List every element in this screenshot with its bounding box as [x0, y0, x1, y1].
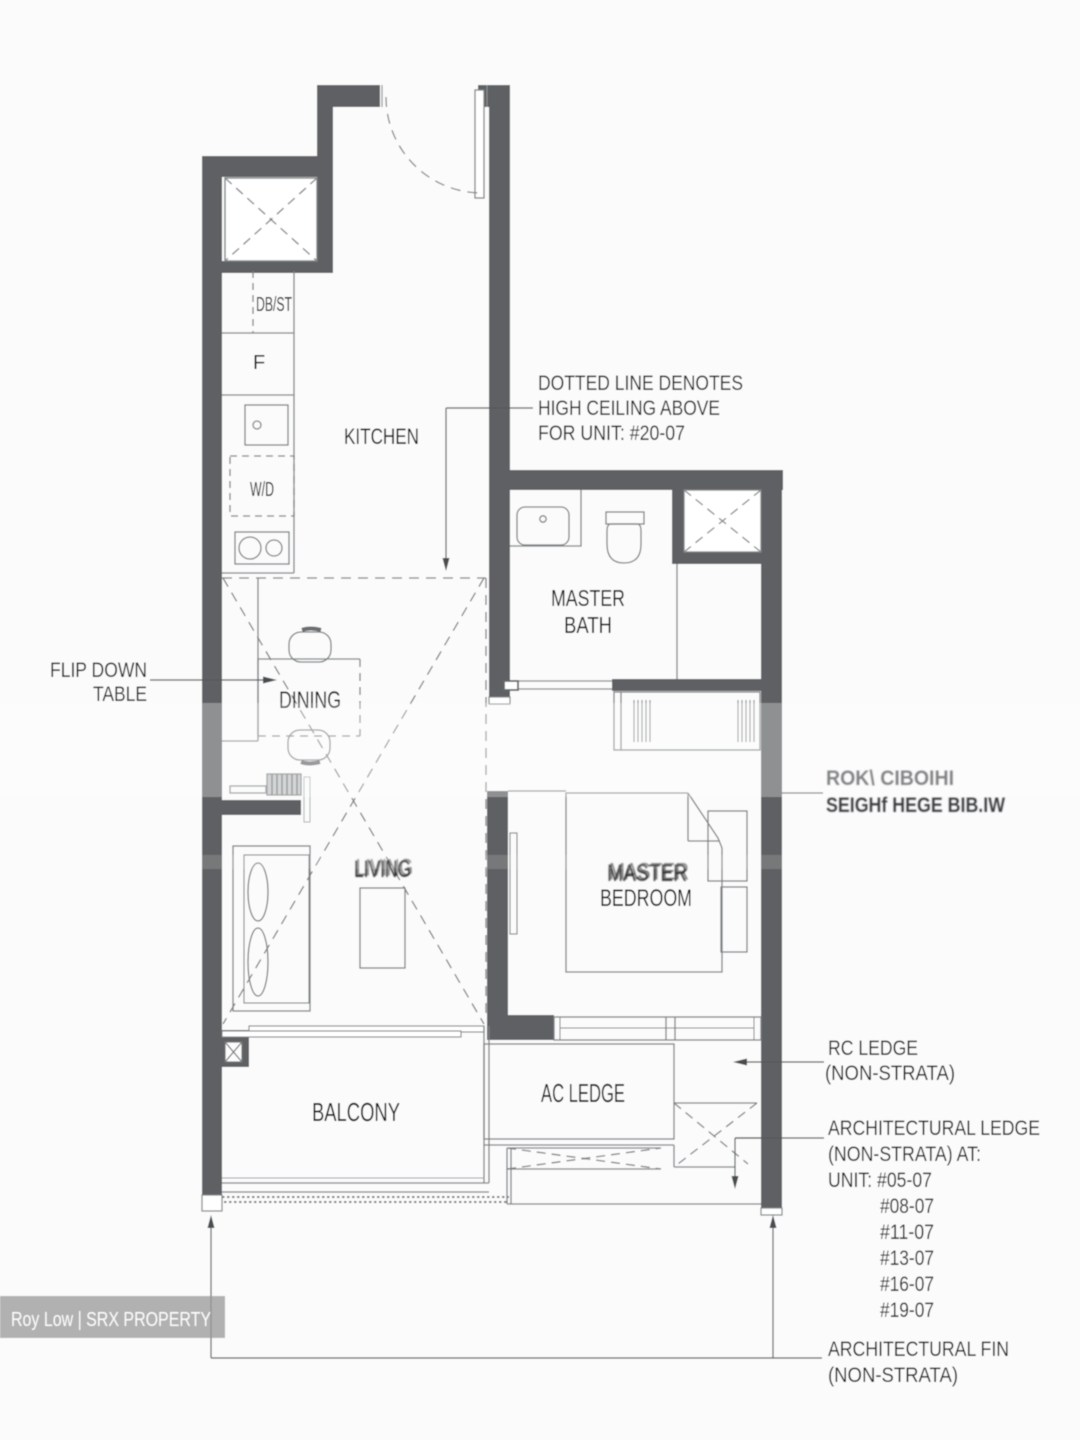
svg-text:AC LEDGE: AC LEDGE — [541, 1078, 625, 1108]
svg-text:#11-07: #11-07 — [880, 1221, 934, 1244]
svg-text:#19-07: #19-07 — [880, 1299, 934, 1322]
svg-text:ARCHITECTURAL FIN: ARCHITECTURAL FIN — [828, 1338, 1009, 1361]
svg-text:W/D: W/D — [250, 479, 274, 501]
svg-text:KITCHEN: KITCHEN — [344, 424, 419, 449]
svg-text:UNIT: #05-07: UNIT: #05-07 — [828, 1169, 932, 1192]
svg-text:TABLE: TABLE — [93, 683, 147, 706]
svg-text:BATH: BATH — [564, 612, 612, 638]
svg-text:(NON-STRATA): (NON-STRATA) — [825, 1062, 955, 1085]
svg-text:(NON-STRATA) AT:: (NON-STRATA) AT: — [828, 1143, 981, 1166]
svg-text:ARCHITECTURAL LEDGE: ARCHITECTURAL LEDGE — [828, 1117, 1040, 1140]
svg-text:DB/ST: DB/ST — [256, 294, 292, 316]
svg-text:RC LEDGE: RC LEDGE — [828, 1037, 918, 1060]
svg-text:#16-07: #16-07 — [880, 1273, 934, 1296]
svg-text:DOTTED LINE DENOTES: DOTTED LINE DENOTES — [538, 372, 743, 395]
svg-text:HIGH CEILING ABOVE: HIGH CEILING ABOVE — [538, 397, 720, 420]
svg-text:FOR UNIT: #20-07: FOR UNIT: #20-07 — [538, 422, 685, 445]
svg-text:BEDROOM: BEDROOM — [600, 885, 692, 912]
svg-text:MASTER: MASTER — [551, 585, 625, 611]
svg-text:#08-07: #08-07 — [880, 1195, 934, 1218]
svg-text:#13-07: #13-07 — [880, 1247, 934, 1270]
svg-text:SEIGHf HEGE BIB.IW: SEIGHf HEGE BIB.IW — [826, 794, 1005, 817]
svg-text:F: F — [253, 352, 265, 374]
svg-text:FLIP DOWN: FLIP DOWN — [50, 659, 147, 682]
svg-text:(NON-STRATA): (NON-STRATA) — [828, 1364, 958, 1387]
svg-text:Roy Low | SRX PROPERTY: Roy Low | SRX PROPERTY — [11, 1309, 211, 1331]
svg-text:BALCONY: BALCONY — [312, 1097, 400, 1127]
